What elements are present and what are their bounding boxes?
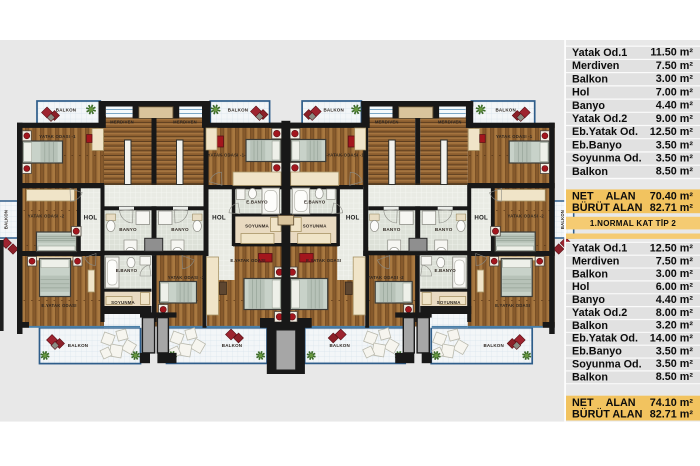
svg-text:Eb.Yatak Od.: Eb.Yatak Od. [572, 333, 638, 345]
svg-text:Yatak Od.1: Yatak Od.1 [572, 243, 627, 255]
svg-text:BANYO: BANYO [171, 227, 189, 232]
svg-text:3.50 m²: 3.50 m² [656, 358, 694, 370]
svg-text:E.YATAK ODASI: E.YATAK ODASI [41, 303, 76, 308]
svg-text:E.BANYO: E.BANYO [116, 268, 138, 273]
svg-text:BANYO: BANYO [119, 227, 137, 232]
svg-text:7.50 m²: 7.50 m² [656, 255, 694, 267]
svg-text:MERDIVEN: MERDIVEN [375, 120, 399, 125]
svg-text:BALKON: BALKON [483, 343, 503, 348]
svg-text:SOYUNMA: SOYUNMA [303, 224, 327, 229]
svg-text:BALKON: BALKON [228, 108, 248, 113]
svg-text:Hol: Hol [572, 281, 589, 293]
svg-text:Balkon: Balkon [572, 320, 608, 332]
svg-text:E.BANYO: E.BANYO [246, 200, 268, 205]
svg-text:YATAK ODASI -2: YATAK ODASI -2 [168, 275, 205, 280]
svg-text:4.40 m²: 4.40 m² [656, 100, 694, 112]
svg-text:3.50 m²: 3.50 m² [656, 153, 694, 165]
svg-text:E.YATAK ODASI: E.YATAK ODASI [306, 258, 341, 263]
svg-text:Balkon: Balkon [572, 73, 608, 85]
svg-text:Banyo: Banyo [572, 294, 605, 306]
svg-text:E.BANYO: E.BANYO [434, 268, 456, 273]
svg-text:MERDIVEN: MERDIVEN [438, 120, 462, 125]
svg-text:MERDIVEN: MERDIVEN [110, 120, 134, 125]
svg-text:BALKON: BALKON [4, 210, 9, 229]
svg-text:7.50 m²: 7.50 m² [656, 60, 694, 72]
svg-text:8.50 m²: 8.50 m² [656, 166, 694, 178]
svg-text:14.00 m²: 14.00 m² [650, 333, 694, 345]
svg-text:Balkon: Balkon [572, 166, 608, 178]
svg-text:YATAK ODASI -1: YATAK ODASI -1 [328, 153, 365, 158]
svg-text:NET ALAN: NET ALAN [572, 397, 636, 409]
svg-text:E.YATAK ODASI: E.YATAK ODASI [495, 303, 530, 308]
svg-text:BÜRÜT ALAN: BÜRÜT ALAN [572, 407, 643, 420]
svg-text:Merdiven: Merdiven [572, 60, 619, 72]
svg-text:Hol: Hol [572, 87, 589, 99]
svg-text:3.50 m²: 3.50 m² [656, 345, 694, 357]
svg-text:8.00 m²: 8.00 m² [656, 307, 694, 319]
svg-text:SOYUNMA: SOYUNMA [437, 300, 461, 305]
svg-text:SOYUNMA: SOYUNMA [245, 224, 269, 229]
svg-text:Banyo: Banyo [572, 100, 605, 112]
svg-text:3.50 m²: 3.50 m² [656, 139, 694, 151]
svg-text:MERDIVEN: MERDIVEN [173, 120, 197, 125]
svg-text:70.40 m²: 70.40 m² [650, 190, 694, 202]
svg-text:Soyunma Od.: Soyunma Od. [572, 153, 642, 165]
svg-text:SOYUNMA: SOYUNMA [111, 300, 135, 305]
svg-text:11.50 m²: 11.50 m² [650, 47, 693, 59]
svg-text:BANYO: BANYO [383, 227, 401, 232]
svg-text:HOL: HOL [212, 215, 226, 222]
svg-text:E.BANYO: E.BANYO [304, 200, 326, 205]
svg-text:3.00 m²: 3.00 m² [656, 73, 694, 85]
svg-text:6.00 m²: 6.00 m² [656, 281, 694, 293]
svg-text:82.71 m²: 82.71 m² [650, 408, 694, 420]
svg-text:3.20 m²: 3.20 m² [656, 320, 694, 332]
svg-text:12.50 m²: 12.50 m² [650, 126, 694, 138]
svg-text:BALKON: BALKON [56, 108, 76, 113]
svg-text:BANYO: BANYO [435, 227, 453, 232]
svg-text:7.00 m²: 7.00 m² [656, 86, 694, 98]
svg-text:Eb.Banyo: Eb.Banyo [572, 346, 622, 358]
svg-text:BALKON: BALKON [495, 108, 515, 113]
svg-text:Yatak Od.1: Yatak Od.1 [572, 47, 627, 59]
svg-text:Yatak Od.2: Yatak Od.2 [572, 307, 627, 319]
svg-text:9.00 m²: 9.00 m² [656, 113, 694, 125]
svg-text:Eb.Yatak Od.: Eb.Yatak Od. [572, 126, 638, 138]
svg-text:82.71 m²: 82.71 m² [650, 202, 694, 214]
svg-text:YATAK ODASI -2: YATAK ODASI -2 [368, 275, 405, 280]
svg-text:YATAK ODASI -1: YATAK ODASI -1 [208, 153, 245, 158]
svg-text:Yatak Od.2: Yatak Od.2 [572, 113, 627, 125]
svg-text:BALKON: BALKON [68, 343, 88, 348]
svg-text:HOL: HOL [84, 215, 98, 222]
svg-text:YATAK ODASI -2: YATAK ODASI -2 [508, 214, 545, 219]
svg-text:4.40 m²: 4.40 m² [656, 294, 694, 306]
svg-text:BALKON: BALKON [222, 343, 242, 348]
svg-text:NET ALAN: NET ALAN [572, 190, 636, 202]
svg-text:3.00 m²: 3.00 m² [656, 268, 694, 280]
svg-text:HOL: HOL [474, 215, 488, 222]
svg-text:Eb.Banyo: Eb.Banyo [572, 140, 622, 152]
svg-text:Merdiven: Merdiven [572, 256, 619, 268]
svg-text:8.50 m²: 8.50 m² [656, 371, 694, 383]
svg-text:YATAK ODASI -1: YATAK ODASI -1 [496, 134, 533, 139]
svg-text:BÜRÜT ALAN: BÜRÜT ALAN [572, 201, 643, 214]
svg-text:BALKON: BALKON [329, 343, 349, 348]
svg-text:74.10 m²: 74.10 m² [650, 397, 694, 409]
svg-text:E.YATAK ODASI: E.YATAK ODASI [230, 258, 265, 263]
svg-text:YATAK ODASI -2: YATAK ODASI -2 [28, 214, 65, 219]
svg-text:HOL: HOL [346, 215, 360, 222]
svg-text:Balkon: Balkon [572, 268, 608, 280]
svg-text:Soyunma Od.: Soyunma Od. [572, 358, 642, 370]
svg-text:1.NORMAL KAT TİP 2: 1.NORMAL KAT TİP 2 [590, 219, 677, 228]
svg-text:YATAK ODASI -1: YATAK ODASI -1 [39, 134, 76, 139]
svg-text:12.50 m²: 12.50 m² [650, 243, 694, 255]
svg-text:BALKON: BALKON [323, 108, 343, 113]
svg-text:Balkon: Balkon [572, 371, 608, 383]
